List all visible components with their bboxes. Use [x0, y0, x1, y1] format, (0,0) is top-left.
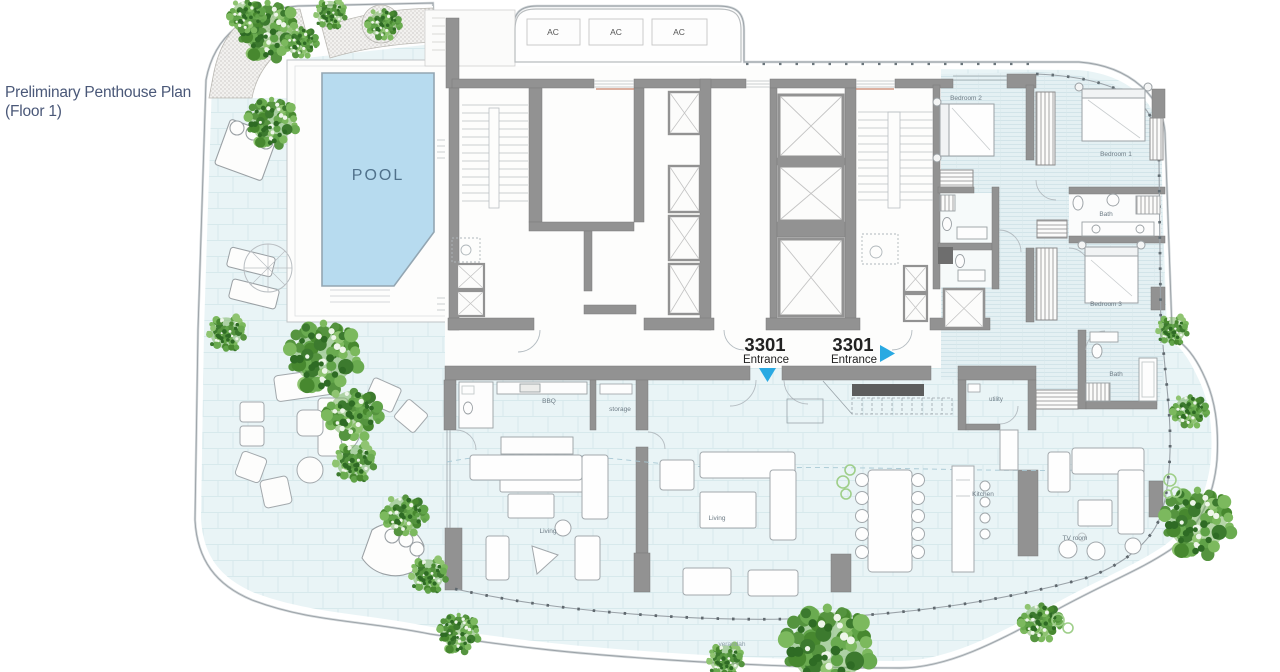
svg-text:verandah: verandah: [718, 641, 745, 648]
svg-text:3301: 3301: [832, 334, 873, 355]
svg-text:Kitchen: Kitchen: [972, 491, 994, 498]
svg-text:Entrance: Entrance: [743, 354, 789, 366]
svg-text:Living: Living: [709, 515, 726, 522]
svg-text:storage: storage: [609, 406, 631, 413]
svg-text:AC: AC: [610, 27, 622, 37]
svg-text:BBQ: BBQ: [542, 398, 556, 405]
svg-text:Entrance: Entrance: [831, 354, 877, 366]
svg-text:AC: AC: [673, 27, 685, 37]
svg-text:AC: AC: [547, 27, 559, 37]
svg-text:utility: utility: [989, 397, 1003, 403]
svg-text:POOL: POOL: [352, 167, 404, 184]
svg-text:Bath: Bath: [1109, 371, 1123, 378]
svg-text:Living: Living: [540, 528, 557, 535]
svg-text:Bath: Bath: [1099, 211, 1113, 218]
svg-text:(Floor 1): (Floor 1): [5, 103, 62, 120]
svg-text:TV room: TV room: [1063, 535, 1088, 542]
svg-text:Preliminary Penthouse Plan: Preliminary Penthouse Plan: [5, 84, 191, 101]
svg-text:Bedroom 2: Bedroom 2: [950, 95, 982, 102]
svg-text:Bedroom 3: Bedroom 3: [1090, 301, 1122, 308]
svg-text:Bedroom 1: Bedroom 1: [1100, 151, 1132, 158]
svg-text:3301: 3301: [744, 334, 785, 355]
